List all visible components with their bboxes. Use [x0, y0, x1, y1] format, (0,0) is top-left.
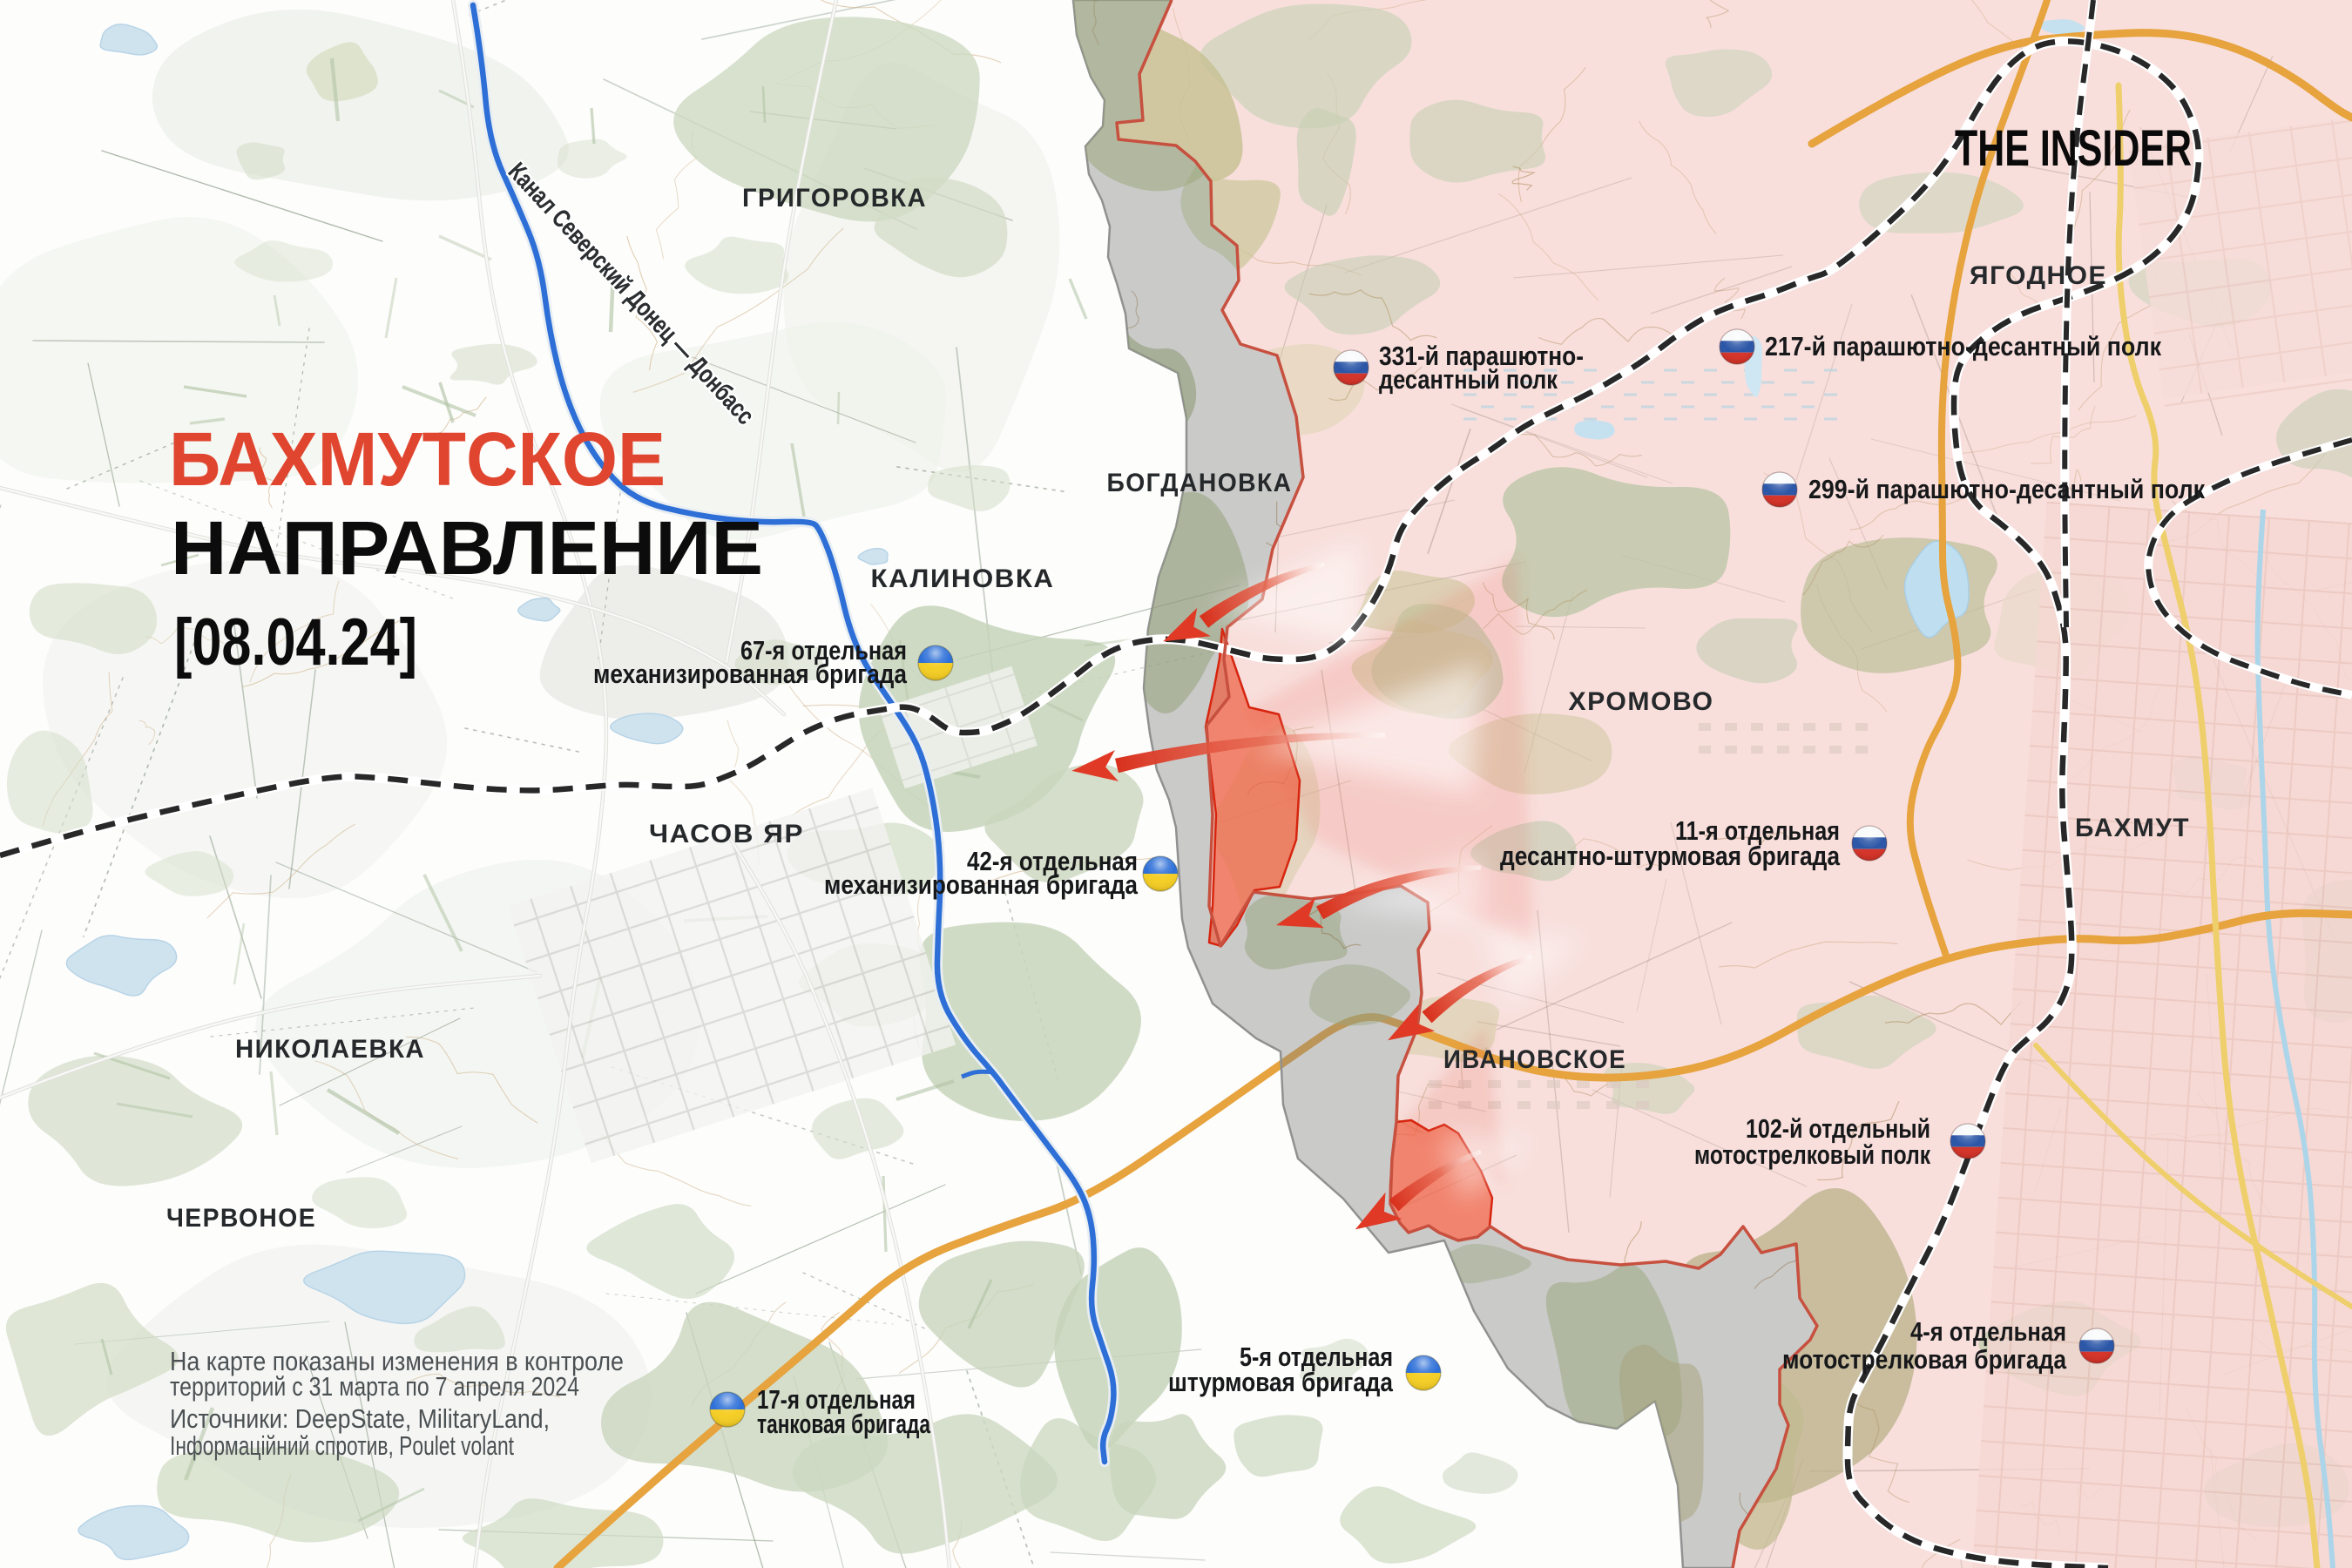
svg-text:Источники: DeepState, Military: Источники: DeepState, MilitaryLand,Інфор… — [170, 1403, 550, 1461]
svg-text:[08.04.24]: [08.04.24] — [174, 605, 417, 679]
svg-text:НИКОЛАЕВКА: НИКОЛАЕВКА — [235, 1035, 425, 1064]
svg-text:ЯГОДНОЕ: ЯГОДНОЕ — [1970, 261, 2107, 290]
svg-text:217-й парашютно-десантный полк: 217-й парашютно-десантный полк — [1765, 331, 2161, 362]
svg-text:БОГДАНОВКА: БОГДАНОВКА — [1107, 469, 1293, 497]
svg-text:299-й парашютно-десантный полк: 299-й парашютно-десантный полк — [1808, 474, 2205, 504]
svg-text:ЧАСОВ ЯР: ЧАСОВ ЯР — [649, 820, 804, 848]
svg-text:ГРИГОРОВКА: ГРИГОРОВКА — [742, 184, 927, 213]
svg-text:17-я отдельнаятанковая бригада: 17-я отдельнаятанковая бригада — [757, 1384, 931, 1439]
svg-text:КАЛИНОВКА: КАЛИНОВКА — [871, 564, 1055, 593]
svg-text:ИВАНОВСКОЕ: ИВАНОВСКОЕ — [1443, 1045, 1626, 1074]
svg-text:БАХМУТСКОЕ: БАХМУТСКОЕ — [169, 417, 666, 502]
svg-text:ХРОМОВО: ХРОМОВО — [1569, 687, 1714, 716]
svg-text:НАПРАВЛЕНИЕ: НАПРАВЛЕНИЕ — [171, 506, 763, 591]
svg-text:THE INSIDER: THE INSIDER — [1955, 120, 2192, 177]
svg-text:БАХМУТ: БАХМУТ — [2075, 814, 2190, 842]
svg-text:На карте показаны изменения в: На карте показаны изменения в контролете… — [170, 1346, 624, 1402]
svg-text:ЧЕРВОНОЕ: ЧЕРВОНОЕ — [166, 1204, 316, 1233]
svg-text:331-й парашютно-десантный полк: 331-й парашютно-десантный полк — [1379, 341, 1584, 395]
